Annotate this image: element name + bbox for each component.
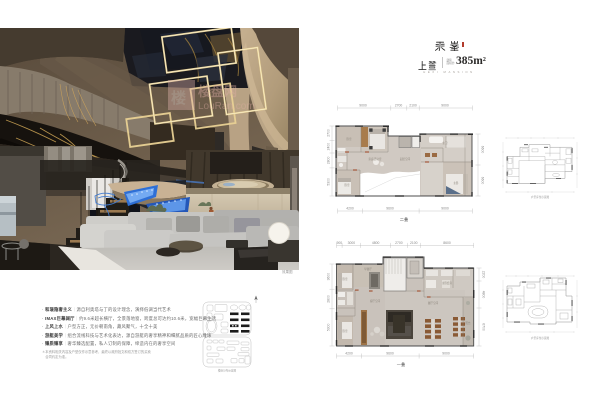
svg-text:2400: 2400 [326,143,330,151]
svg-text:LouRan.com: LouRan.com [198,101,255,112]
svg-text:6600: 6600 [481,146,485,154]
svg-text:2800: 2800 [326,157,330,165]
svg-text:4200: 4200 [345,352,353,356]
svg-text:2700: 2700 [326,129,330,137]
svg-text:主卧: 主卧 [453,181,459,185]
svg-text:4800: 4800 [372,241,380,245]
svg-text:楼座分布示意图: 楼座分布示意图 [218,369,237,373]
svg-text:阳台: 阳台 [465,321,471,325]
svg-text:卧室: 卧室 [346,137,352,141]
svg-text:6600: 6600 [481,177,485,185]
svg-text:家庭活动室: 家庭活动室 [369,157,382,161]
svg-text:一叠: 一叠 [397,362,405,368]
svg-text:卧室: 卧室 [342,329,348,333]
svg-text:9000: 9000 [359,104,367,108]
svg-text:餐厅空间: 餐厅空间 [428,301,439,305]
svg-text:卧室: 卧室 [344,183,350,187]
svg-text:2200: 2200 [482,271,486,279]
svg-text:2100: 2100 [410,241,418,245]
svg-text:900: 900 [336,241,342,245]
svg-text:5300: 5300 [326,324,330,332]
svg-text:4200: 4200 [346,207,354,211]
svg-text:二叠: 二叠 [400,217,408,223]
svg-text:5300: 5300 [326,178,330,186]
svg-text:2700: 2700 [395,241,403,245]
svg-text:9000: 9000 [441,207,449,211]
svg-text:2700: 2700 [395,104,403,108]
svg-text:4800: 4800 [482,291,486,299]
svg-text:起居空间: 起居空间 [400,157,411,161]
svg-text:楼: 楼 [171,89,186,107]
svg-text:9600: 9600 [386,352,394,356]
svg-text:3600: 3600 [326,273,330,281]
svg-text:户型库位示意图: 户型库位示意图 [531,336,550,340]
svg-text:6700: 6700 [482,323,486,331]
svg-text:卧室: 卧室 [342,277,348,281]
svg-text:客厅空间: 客厅空间 [370,299,381,303]
svg-text:主卧套房: 主卧套房 [442,281,453,285]
svg-text:9000: 9000 [442,352,450,356]
svg-text:8600: 8600 [443,241,451,245]
svg-text:3000: 3000 [348,241,356,245]
svg-text:主卫: 主卫 [442,141,448,145]
svg-text:楼盘网: 楼盘网 [198,84,237,99]
svg-text:户型库位示意图: 户型库位示意图 [531,195,550,199]
svg-text:2800: 2800 [326,295,330,303]
svg-text:早餐厅: 早餐厅 [364,267,372,271]
svg-text:2100: 2100 [409,104,417,108]
svg-text:9600: 9600 [386,207,394,211]
svg-text:9000: 9000 [441,104,449,108]
